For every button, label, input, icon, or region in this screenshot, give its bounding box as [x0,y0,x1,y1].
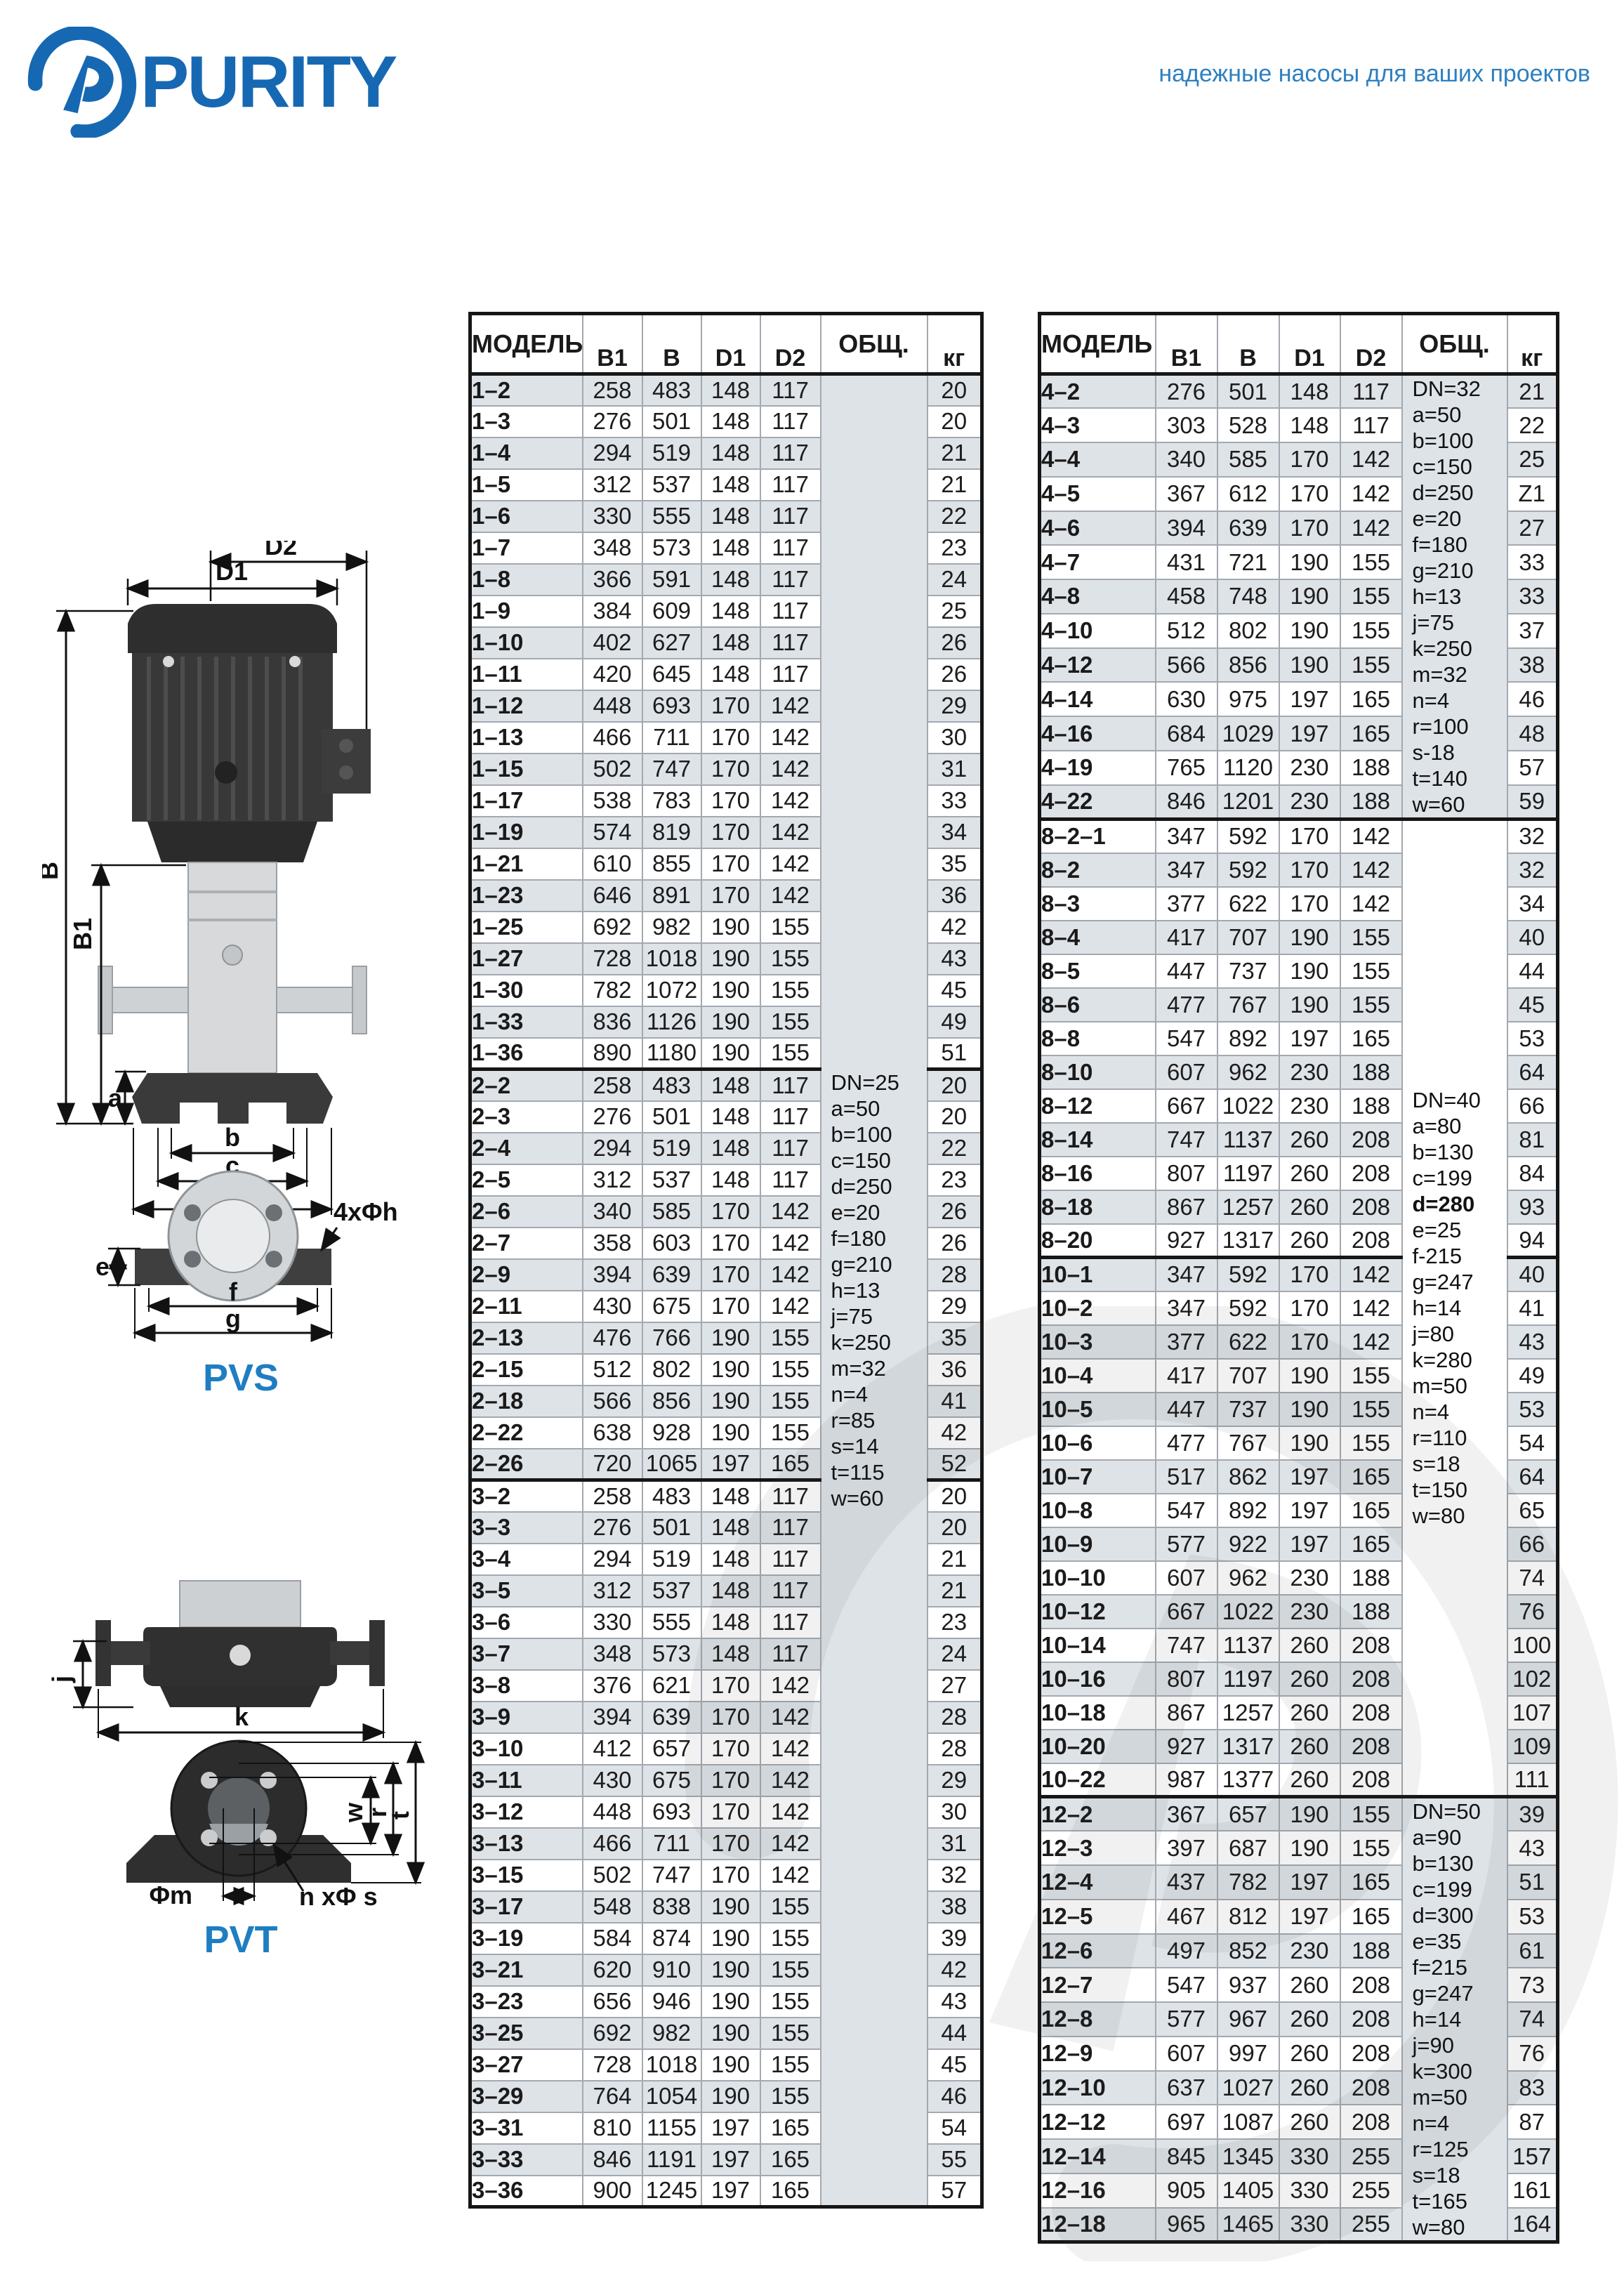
obsh-note-line: r=125 [1413,2136,1507,2162]
value-cell: 1317 [1217,1224,1279,1258]
value-cell: 692 [583,2018,642,2049]
value-cell: 528 [1217,408,1279,442]
value-cell: 117 [760,1101,821,1133]
value-cell: 577 [1156,1527,1217,1561]
value-cell: 965 [1156,2208,1217,2242]
kg-cell: 38 [927,1891,982,1923]
dim-label-d1: D1 [216,557,248,586]
value-cell: 477 [1156,1426,1217,1460]
header-row: МОДЕЛЬB1BD1D2ОБЩ.кг [470,314,982,374]
model-cell: 12–5 [1040,1900,1156,1934]
obsh-note-line: b=130 [1413,1850,1507,1876]
value-cell: 483 [642,1070,701,1101]
value-cell: 294 [583,438,642,469]
value-cell: 190 [701,975,760,1006]
value-cell: 260 [1279,2071,1340,2105]
model-cell: 1–10 [470,627,583,659]
model-cell: 1–7 [470,532,583,564]
value-cell: 170 [701,1828,760,1860]
obsh-note-line: r=85 [831,1407,927,1433]
value-cell: 190 [701,1386,760,1417]
kg-cell: 41 [927,1386,982,1417]
value-cell: 846 [1156,785,1217,820]
value-cell: 1029 [1217,716,1279,751]
table-row: 8–2–1347592170142DN=40a=80b=130c=199d=28… [1040,820,1558,853]
value-cell: 117 [760,659,821,690]
obsh-note-line: t=150 [1413,1477,1507,1503]
model-cell: 1–2 [470,374,583,406]
value-cell: 721 [1217,545,1279,579]
model-cell: 2–4 [470,1133,583,1164]
value-cell: 819 [642,817,701,848]
value-cell: 260 [1279,1123,1340,1157]
value-cell: 188 [1340,1089,1402,1123]
obsh-note-line: t=140 [1413,765,1507,791]
kg-cell: 28 [927,1733,982,1765]
model-cell: 3–31 [470,2112,583,2144]
value-cell: 142 [760,722,821,754]
model-cell: 4–12 [1040,648,1156,683]
table-row: 4–2276501148117DN=32a=50b=100c=150d=250e… [1040,374,1558,409]
coupling [147,822,317,862]
model-cell: 1–11 [470,659,583,690]
dim-label-t: t [385,1811,414,1820]
value-cell: 867 [1156,1190,1217,1224]
value-cell: 519 [642,1133,701,1164]
value-cell: 501 [642,1101,701,1133]
value-cell: 190 [701,1891,760,1923]
col-header: кг [1507,314,1558,374]
value-cell: 1018 [642,2049,701,2081]
value-cell: 687 [1217,1831,1279,1865]
kg-cell: 20 [927,1070,982,1101]
value-cell: 197 [1279,1022,1340,1055]
model-cell: 2–11 [470,1291,583,1322]
value-cell: 276 [1156,374,1217,409]
value-cell: 512 [1156,614,1217,648]
value-cell: 1345 [1217,2139,1279,2173]
obsh-note-line: r=100 [1413,713,1507,739]
value-cell: 190 [701,2081,760,2112]
value-cell: 1137 [1217,1123,1279,1157]
value-cell: 547 [1156,1494,1217,1527]
value-cell: 260 [1279,1730,1340,1763]
value-cell: 260 [1279,2037,1340,2071]
model-cell: 2–26 [470,1449,583,1480]
value-cell: 1191 [642,2144,701,2176]
dim-label-j: j [47,1676,76,1683]
dim-label-d2: D2 [265,541,297,560]
value-cell: 117 [760,1638,821,1670]
value-cell: 208 [1340,2037,1402,2071]
dim-label-b-height: B [42,862,63,880]
value-cell: 358 [583,1228,642,1259]
value-cell: 142 [760,1196,821,1228]
value-cell: 197 [1279,716,1340,751]
value-cell: 190 [701,2018,760,2049]
value-cell: 155 [1340,921,1402,954]
value-cell: 190 [701,1417,760,1449]
value-cell: 117 [760,406,821,438]
value-cell: 230 [1279,1089,1340,1123]
value-cell: 693 [642,690,701,722]
value-cell: 142 [1340,853,1402,887]
value-cell: 852 [1217,1934,1279,1968]
value-cell: 190 [1279,579,1340,614]
value-cell: 987 [1156,1763,1217,1797]
col-header: B [642,314,701,374]
dim-label-nxfs: n xΦ s [299,1882,378,1910]
value-cell: 766 [642,1322,701,1354]
kg-cell: 76 [1507,2037,1558,2071]
obsh-note-line: s-18 [1413,739,1507,765]
value-cell: 142 [760,1860,821,1891]
obsh-note-line: f=180 [1413,532,1507,558]
model-cell: 3–13 [470,1828,583,1860]
obsh-note-line: f-215 [1413,1243,1507,1269]
value-cell: 255 [1340,2139,1402,2173]
value-cell: 519 [642,1544,701,1575]
kg-cell: 84 [1507,1157,1558,1190]
pump-column [188,862,277,1073]
model-cell: 12–12 [1040,2105,1156,2139]
model-cell: 3–10 [470,1733,583,1765]
value-cell: 148 [701,501,760,532]
value-cell: 782 [1217,1865,1279,1900]
value-cell: 697 [1156,2105,1217,2139]
kg-cell: 54 [1507,1426,1558,1460]
value-cell: 190 [701,2049,760,2081]
value-cell: 190 [701,1322,760,1354]
value-cell: 612 [1217,477,1279,511]
kg-cell: 57 [927,2176,982,2207]
col-header: B1 [1156,314,1217,374]
value-cell: 367 [1156,477,1217,511]
value-cell: 1155 [642,2112,701,2144]
model-cell: 2–2 [470,1070,583,1101]
value-cell: 197 [1279,1865,1340,1900]
obsh-note-line: s=18 [1413,1451,1507,1477]
kg-cell: 46 [927,2081,982,2112]
value-cell: 165 [1340,716,1402,751]
value-cell: 148 [701,564,760,596]
kg-cell: 26 [927,627,982,659]
value-cell: 747 [1156,1123,1217,1157]
value-cell: 155 [1340,545,1402,579]
dim-label-m: Φm [149,1881,192,1909]
value-cell: 537 [642,1575,701,1607]
col-header: кг [927,314,982,374]
value-cell: 397 [1156,1831,1217,1865]
obsh-note-line: k=250 [1413,636,1507,662]
value-cell: 1465 [1217,2208,1279,2242]
value-cell: 142 [760,1828,821,1860]
value-cell: 142 [1340,1325,1402,1359]
value-cell: 1022 [1217,1089,1279,1123]
left-flange [95,1620,111,1686]
obsh-note-line: w=60 [831,1485,927,1511]
value-cell: 675 [642,1765,701,1796]
value-cell: 728 [583,943,642,975]
model-cell: 10–2 [1040,1291,1156,1325]
value-cell: 142 [1340,1258,1402,1291]
value-cell: 639 [642,1259,701,1291]
model-cell: 10–7 [1040,1460,1156,1494]
value-cell: 467 [1156,1900,1217,1934]
col-header: D2 [760,314,821,374]
kg-cell: 64 [1507,1055,1558,1089]
kg-cell: 76 [1507,1595,1558,1629]
kg-cell: 35 [927,848,982,880]
value-cell: 170 [701,817,760,848]
value-cell: 165 [1340,1865,1402,1900]
value-cell: 555 [642,1607,701,1638]
kg-cell: 37 [1507,614,1558,648]
value-cell: 170 [1279,511,1340,546]
obsh-note-line: j=75 [1413,610,1507,636]
value-cell: 748 [1217,579,1279,614]
model-cell: 3–2 [470,1480,583,1512]
header-row: МОДЕЛЬB1BD1D2ОБЩ.кг [1040,314,1558,374]
value-cell: 170 [701,722,760,754]
kg-cell: 87 [1507,2105,1558,2139]
value-cell: 170 [701,785,760,817]
model-cell: 4–4 [1040,442,1156,477]
value-cell: 190 [1279,988,1340,1022]
value-cell: 684 [1156,716,1217,751]
value-cell: 646 [583,880,642,912]
value-cell: 574 [583,817,642,848]
value-cell: 165 [1340,682,1402,716]
value-cell: 255 [1340,2208,1402,2242]
dim-label-4xfh: 4xΦh [334,1197,398,1226]
value-cell: 117 [760,1070,821,1101]
value-cell: 155 [760,1417,821,1449]
value-cell: 477 [1156,988,1217,1022]
value-cell: 142 [760,785,821,817]
value-cell: 142 [1340,477,1402,511]
obsh-note-line: e=20 [831,1199,927,1225]
model-cell: 10–5 [1040,1393,1156,1426]
value-cell: 1137 [1217,1629,1279,1662]
value-cell: 846 [583,2144,642,2176]
value-cell: 170 [1279,820,1340,853]
kg-cell: 23 [927,532,982,564]
value-cell: 855 [642,848,701,880]
model-cell: 1–17 [470,785,583,817]
kg-cell: 43 [1507,1831,1558,1865]
obsh-note-line: d=250 [1413,480,1507,506]
model-cell: 4–19 [1040,751,1156,785]
value-cell: 188 [1340,1934,1402,1968]
kg-cell: 54 [927,2112,982,2144]
kg-cell: 49 [927,1006,982,1038]
model-cell: 8–2–1 [1040,820,1156,853]
model-cell: 2–22 [470,1417,583,1449]
kg-cell: 59 [1507,785,1558,820]
obsh-note-line: c=150 [831,1147,927,1173]
kg-cell: 40 [1507,921,1558,954]
value-cell: 117 [760,1575,821,1607]
value-cell: 657 [642,1733,701,1765]
value-cell: 836 [583,1006,642,1038]
value-cell: 148 [701,1512,760,1544]
value-cell: 1126 [642,1006,701,1038]
col-header: D2 [1340,314,1402,374]
value-cell: 538 [583,785,642,817]
value-cell: 190 [701,1038,760,1070]
value-cell: 577 [1156,2002,1217,2037]
dim-label-g: g [225,1304,241,1333]
model-cell: 1–6 [470,501,583,532]
value-cell: 637 [1156,2071,1217,2105]
kg-cell: 31 [927,754,982,785]
value-cell: 609 [642,596,701,627]
value-cell: 260 [1279,1662,1340,1696]
value-cell: 501 [642,406,701,438]
value-cell: 622 [1217,1325,1279,1359]
value-cell: 155 [760,1006,821,1038]
value-cell: 862 [1217,1460,1279,1494]
model-cell: 12–7 [1040,1968,1156,2002]
value-cell: 148 [701,627,760,659]
value-cell: 967 [1217,2002,1279,2037]
value-cell: 117 [760,1480,821,1512]
value-cell: 260 [1279,1190,1340,1224]
kg-cell: 36 [927,880,982,912]
value-cell: 856 [1217,648,1279,683]
value-cell: 922 [1217,1527,1279,1561]
value-cell: 190 [1279,1831,1340,1865]
value-cell: 197 [701,1449,760,1480]
value-cell: 585 [642,1196,701,1228]
col-header: ОБЩ. [821,314,927,374]
value-cell: 155 [760,975,821,1006]
dim-label-f: f [229,1277,238,1306]
kg-cell: 57 [1507,751,1558,785]
kg-cell: 53 [1507,1393,1558,1426]
value-cell: 812 [1217,1900,1279,1934]
value-cell: 946 [642,1986,701,2018]
value-cell: 190 [1279,921,1340,954]
obsh-notes-cell: DN=50a=90b=130c=199d=300e=35f=215g=247h=… [1402,1797,1507,2242]
value-cell: 347 [1156,1291,1217,1325]
value-cell: 483 [642,1480,701,1512]
kg-cell: 81 [1507,1123,1558,1157]
kg-cell: Z1 [1507,477,1558,511]
value-cell: 148 [701,1575,760,1607]
value-cell: 190 [1279,1426,1340,1460]
obsh-note-line: h=14 [1413,1295,1507,1321]
kg-cell: 20 [927,1480,982,1512]
model-cell: 1–25 [470,912,583,943]
right-flange [369,1620,385,1686]
model-cell: 2–6 [470,1196,583,1228]
value-cell: 117 [760,374,821,406]
model-cell: 2–5 [470,1164,583,1196]
value-cell: 728 [583,2049,642,2081]
value-cell: 627 [642,627,701,659]
value-cell: 1180 [642,1038,701,1070]
kg-cell: 53 [1507,1900,1558,1934]
model-cell: 2–13 [470,1322,583,1354]
value-cell: 1245 [642,2176,701,2207]
value-cell: 170 [701,880,760,912]
model-cell: 3–4 [470,1544,583,1575]
model-cell: 10–22 [1040,1763,1156,1797]
kg-cell: 66 [1507,1527,1558,1561]
value-cell: 927 [1156,1730,1217,1763]
kg-cell: 45 [1507,988,1558,1022]
value-cell: 927 [1156,1224,1217,1258]
obsh-note-line: j=80 [1413,1321,1507,1347]
value-cell: 782 [583,975,642,1006]
kg-cell: 32 [1507,820,1558,853]
value-cell: 170 [701,1702,760,1733]
value-cell: 117 [760,596,821,627]
kg-cell: 45 [927,2049,982,2081]
value-cell: 165 [1340,1527,1402,1561]
value-cell: 711 [642,1828,701,1860]
model-cell: 3–23 [470,1986,583,2018]
value-cell: 547 [1156,1022,1217,1055]
value-cell: 190 [701,943,760,975]
value-cell: 190 [1279,648,1340,683]
obsh-note-line: g=247 [1413,1980,1507,2006]
dim-label-e: e [95,1252,110,1281]
value-cell: 1257 [1217,1190,1279,1224]
value-cell: 197 [701,2112,760,2144]
value-cell: 188 [1340,1055,1402,1089]
value-cell: 1257 [1217,1696,1279,1730]
model-cell: 10–8 [1040,1494,1156,1527]
value-cell: 810 [583,2112,642,2144]
value-cell: 348 [583,532,642,564]
value-cell: 148 [701,438,760,469]
value-cell: 117 [760,1164,821,1196]
value-cell: 208 [1340,1224,1402,1258]
junction-box [322,729,371,794]
kg-cell: 20 [927,1101,982,1133]
kg-cell: 74 [1507,1561,1558,1595]
obsh-note-line: DN=25 [831,1070,927,1096]
obsh-note-line: a=50 [831,1096,927,1121]
value-cell: 802 [1217,614,1279,648]
value-cell: 547 [1156,1968,1217,2002]
value-cell: 117 [1340,408,1402,442]
value-cell: 170 [701,848,760,880]
value-cell: 430 [583,1765,642,1796]
model-cell: 3–19 [470,1923,583,1954]
model-cell: 10–20 [1040,1730,1156,1763]
value-cell: 260 [1279,2105,1340,2139]
value-cell: 188 [1340,1561,1402,1595]
value-cell: 230 [1279,751,1340,785]
kg-cell: 43 [927,1986,982,2018]
obsh-note-line: m=50 [1413,2084,1507,2110]
value-cell: 155 [1340,614,1402,648]
kg-cell: 22 [1507,408,1558,442]
value-cell: 155 [760,2049,821,2081]
value-cell: 165 [1340,1022,1402,1055]
value-cell: 502 [583,754,642,785]
value-cell: 258 [583,374,642,406]
value-cell: 142 [760,817,821,848]
value-cell: 330 [583,501,642,532]
model-cell: 1–21 [470,848,583,880]
value-cell: 155 [760,912,821,943]
value-cell: 117 [760,1512,821,1544]
